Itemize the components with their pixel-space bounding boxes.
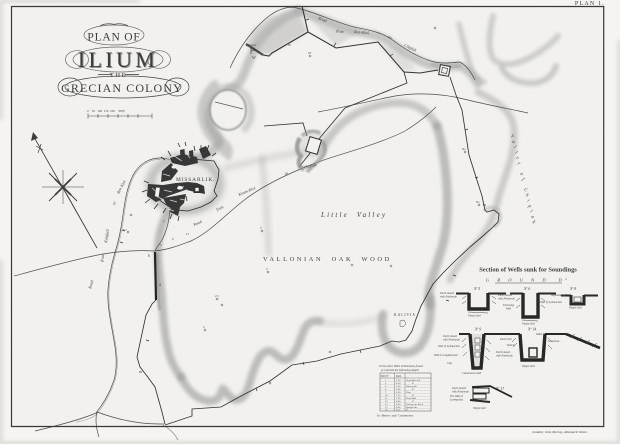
svg-text:PLAN 1.: PLAN 1. [575,1,605,7]
